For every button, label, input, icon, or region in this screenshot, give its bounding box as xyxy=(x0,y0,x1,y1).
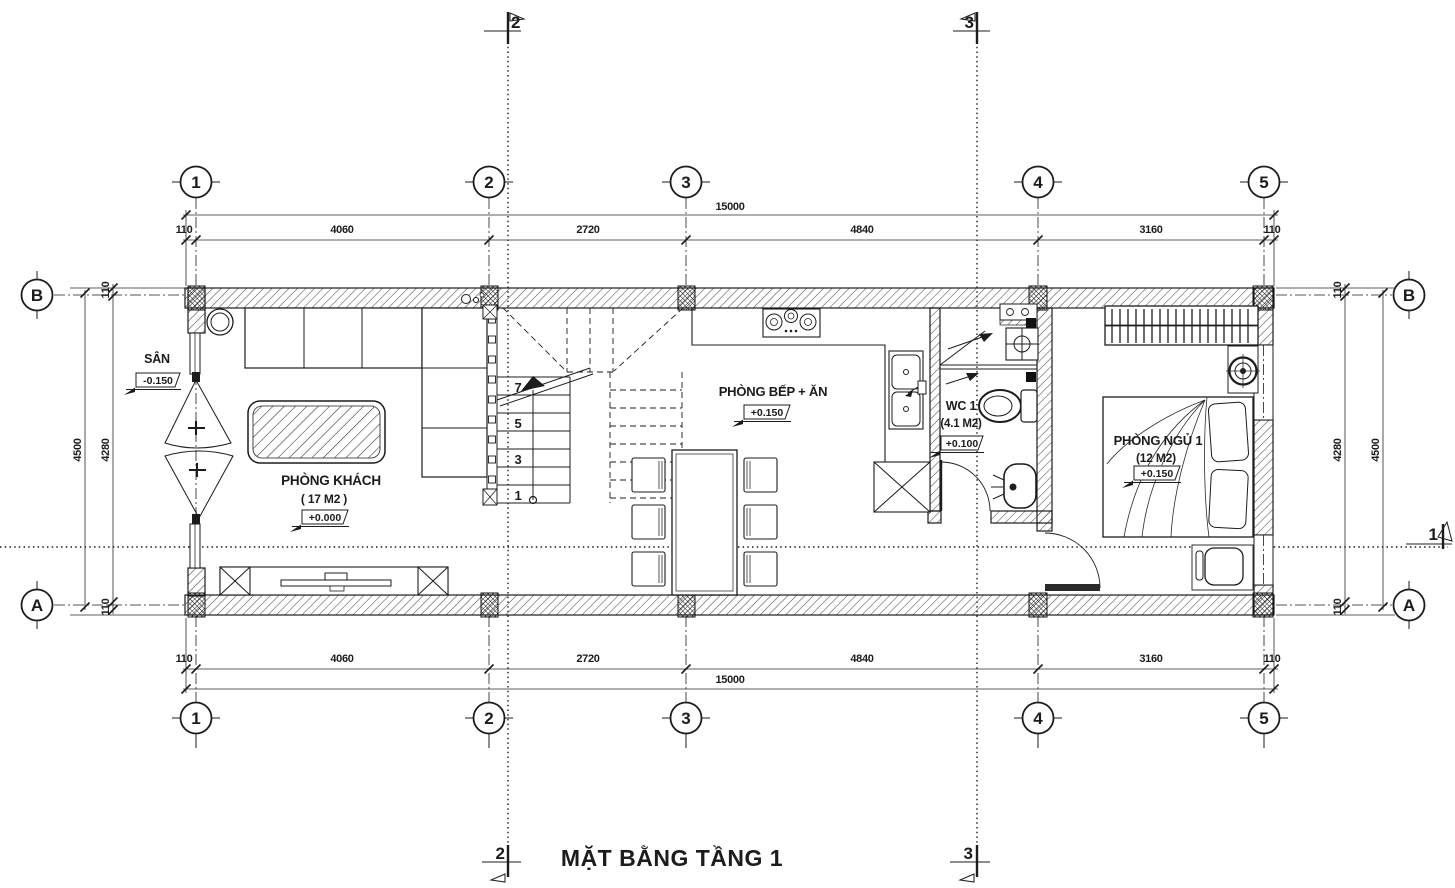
room-label-san: SÂN xyxy=(144,351,170,366)
wardrobe xyxy=(1105,306,1258,345)
dining-table xyxy=(672,450,737,595)
fridge-icon xyxy=(874,462,930,512)
section-label: 3 xyxy=(964,844,973,863)
wall-bottom xyxy=(185,595,1274,615)
room-area-wc: (4.1 M2) xyxy=(940,418,982,430)
bedroom-door xyxy=(1045,533,1100,591)
kitchen-sink-icon xyxy=(889,351,926,429)
grid-label-1: 1 xyxy=(191,709,200,728)
svg-text:-0.150: -0.150 xyxy=(143,375,173,387)
wall-fixture-icon xyxy=(462,295,471,304)
dim-top-4840: 4840 xyxy=(850,224,873,236)
dim-right-4500: 4500 xyxy=(1370,438,1382,461)
wall-fixture-icon xyxy=(474,298,479,303)
wall-right-2 xyxy=(1254,420,1273,535)
dim-bot-110b: 110 xyxy=(1264,653,1281,665)
dim-right-110b: 110 xyxy=(1332,598,1344,615)
grid-label-b: B xyxy=(31,286,43,305)
grid-label-5: 5 xyxy=(1259,709,1268,728)
bidet-icon xyxy=(991,464,1036,508)
stair-step-5: 5 xyxy=(514,416,521,431)
grid-bubbles-top: 1 2 3 4 5 xyxy=(172,167,1288,198)
stair-step-1: 1 xyxy=(514,488,521,503)
dim-left-110t: 110 xyxy=(100,281,112,298)
section-label: 3 xyxy=(965,13,974,32)
svg-text:+0.100: +0.100 xyxy=(946,438,979,450)
wall-left-lower xyxy=(188,568,205,596)
level-tag-san: -0.150 xyxy=(124,373,181,395)
living-room-furniture xyxy=(207,308,487,595)
dim-top-4060: 4060 xyxy=(330,224,353,236)
dim-left-4500: 4500 xyxy=(72,438,84,461)
dim-top-110b: 110 xyxy=(1264,224,1281,236)
room-label-bep: PHÒNG BẾP + ĂN xyxy=(719,384,828,399)
dim-overall-top: 15000 xyxy=(715,201,744,213)
dim-bot-4060: 4060 xyxy=(330,653,353,665)
dim-left-110b: 110 xyxy=(100,598,112,615)
bedroom-furniture xyxy=(1045,306,1260,591)
wc-door xyxy=(941,460,990,511)
floor-drain-icon xyxy=(1026,372,1036,382)
section-label: 2 xyxy=(496,844,505,863)
grid-label-b: B xyxy=(1403,286,1415,305)
toilet-icon xyxy=(979,390,1037,422)
wall-bedroom xyxy=(1037,308,1052,531)
entry-arrow-lower xyxy=(946,373,979,384)
section-marker-2-bottom: 2 xyxy=(482,844,521,882)
dim-bot-110a: 110 xyxy=(176,653,193,665)
section-label: 2 xyxy=(511,13,520,32)
planter-icon xyxy=(207,309,233,335)
grid-label-1: 1 xyxy=(191,173,200,192)
dim-left-4280: 4280 xyxy=(100,438,112,461)
dim-overall-bottom: 15000 xyxy=(715,674,744,686)
coffee-table xyxy=(248,401,385,463)
wall-wc-left xyxy=(930,308,940,511)
dim-bot-4840: 4840 xyxy=(850,653,873,665)
grid-label-5: 5 xyxy=(1259,173,1268,192)
drawing-title: MẶT BẰNG TẦNG 1 xyxy=(561,844,783,871)
door-leaf xyxy=(1045,584,1100,591)
dim-top-3160: 3160 xyxy=(1139,224,1162,236)
wall-wc-bottom-b xyxy=(991,511,1052,523)
grid-label-a: A xyxy=(31,596,43,615)
grid-label-3: 3 xyxy=(681,173,690,192)
svg-text:+0.150: +0.150 xyxy=(1141,468,1174,480)
wall-wc-bottom-a xyxy=(928,511,941,523)
dim-top-110a: 110 xyxy=(176,224,193,236)
room-label-ngu: PHÒNG NGỦ 1 xyxy=(1114,433,1203,448)
wall-fixture-icon xyxy=(480,293,484,297)
room-area-ngu: (12 M2) xyxy=(1136,451,1176,465)
kitchen-furniture xyxy=(632,308,930,595)
stair-direction-arrow xyxy=(521,376,545,391)
grid-label-a: A xyxy=(1403,596,1415,615)
dim-bot-2720: 2720 xyxy=(576,653,599,665)
tv-cabinet xyxy=(220,567,448,595)
nightstand-speaker-icon xyxy=(1226,346,1260,393)
dim-right-4280: 4280 xyxy=(1332,438,1344,461)
dim-right-110t: 110 xyxy=(1332,281,1344,298)
entry-arrow-upper xyxy=(948,333,993,349)
floor-drain-icon xyxy=(1026,318,1036,328)
grid-label-2: 2 xyxy=(484,709,493,728)
section-marker-3-bottom: 3 xyxy=(950,844,990,882)
washing-machine-icon xyxy=(1006,328,1038,360)
section-marker-2-top: 2 xyxy=(484,12,524,44)
grid-label-3: 3 xyxy=(681,709,690,728)
wall-top xyxy=(185,288,1274,308)
grid-label-4: 4 xyxy=(1033,709,1043,728)
floor-plan-drawing: 2 3 2 3 1 xyxy=(0,0,1455,888)
entry-folding-door xyxy=(165,374,233,524)
desk-chair xyxy=(1192,545,1253,590)
svg-text:+0.000: +0.000 xyxy=(309,512,342,524)
stove-icon xyxy=(763,309,820,337)
dim-bot-3160: 3160 xyxy=(1139,653,1162,665)
level-tag-bep: +0.150 xyxy=(732,405,791,427)
svg-text:+0.150: +0.150 xyxy=(751,407,784,419)
floor-plan-svg: 2 3 2 3 1 xyxy=(0,0,1455,888)
level-tag-khach: +0.000 xyxy=(290,510,349,532)
grid-label-4: 4 xyxy=(1033,173,1043,192)
section-marker-1-right: 1 xyxy=(1406,522,1452,549)
room-area-khach: ( 17 M2 ) xyxy=(301,492,347,506)
section-marker-3-top: 3 xyxy=(953,12,990,44)
grid-label-2: 2 xyxy=(484,173,493,192)
stair-step-3: 3 xyxy=(514,452,521,467)
room-label-khach: PHÒNG KHÁCH xyxy=(281,473,381,488)
grid-bubbles-bottom: 1 2 3 4 5 xyxy=(172,703,1288,749)
room-label-wc: WC 1 xyxy=(946,399,977,413)
section-label: 1 xyxy=(1429,525,1438,544)
laundry-door-swing xyxy=(940,331,985,365)
window-right-lower xyxy=(1254,535,1273,585)
stair-step-7: 7 xyxy=(514,380,521,395)
dim-top-2720: 2720 xyxy=(576,224,599,236)
